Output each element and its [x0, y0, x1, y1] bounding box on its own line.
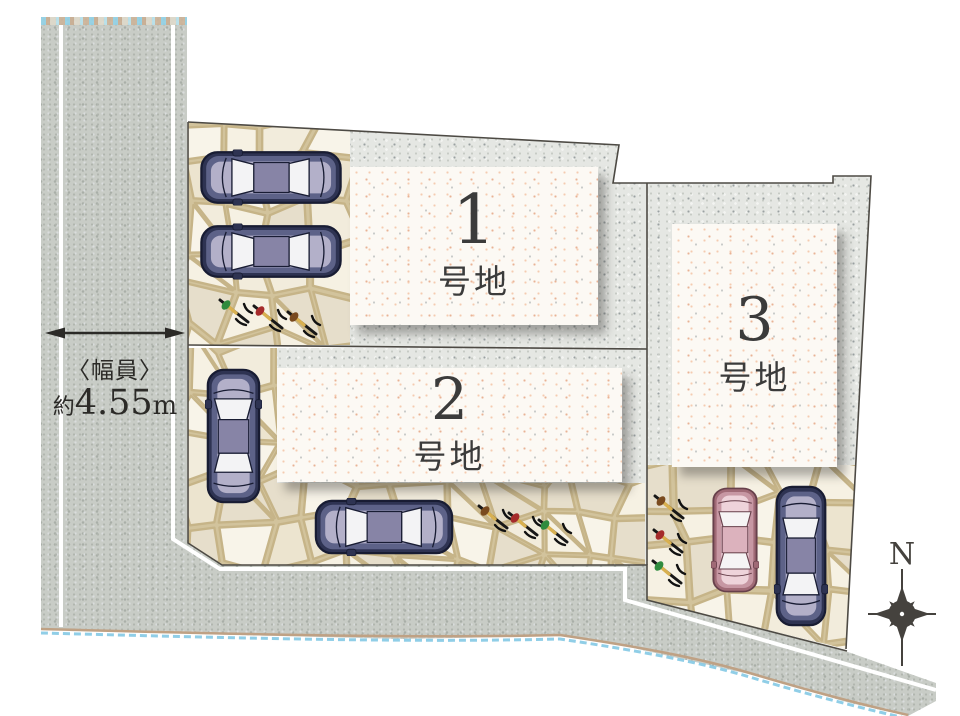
lot-2-number: 2 [431, 372, 468, 427]
car-icon [200, 149, 343, 205]
car-icon [200, 223, 343, 279]
plant-icon [284, 306, 326, 340]
site-plan: 1 号地 2 号地 3 号地 [0, 0, 960, 716]
width-unit: m [153, 391, 178, 421]
plant-icon [535, 514, 577, 548]
width-label: 〈幅員〉 [36, 351, 194, 385]
building-lot-3: 3 号地 [672, 224, 837, 467]
road-width-annotation: 〈幅員〉 約4.55m [36, 325, 194, 423]
width-prefix: 約 [53, 395, 75, 420]
north-label: N [889, 537, 915, 572]
plant-icon [649, 555, 691, 589]
car-icon [205, 368, 262, 504]
lot-3-suffix: 号地 [719, 351, 791, 399]
building-lot-1: 1 号地 [350, 167, 598, 325]
width-number: 4.55 [75, 383, 153, 423]
plant-icon [650, 524, 692, 558]
car-icon [711, 487, 759, 593]
lot-2-suffix: 号地 [414, 430, 486, 478]
lot-1-number: 1 [452, 189, 495, 254]
width-arrow-icon [41, 325, 189, 341]
road-top-edge [41, 17, 187, 25]
compass-rose-icon: N [856, 536, 948, 668]
width-value: 約4.55m [36, 383, 194, 423]
plant-icon [651, 490, 693, 524]
car-icon [314, 498, 454, 556]
lot-3-number: 3 [735, 292, 773, 349]
lot-1-suffix: 号地 [438, 255, 510, 303]
building-lot-2: 2 号地 [277, 368, 622, 482]
car-icon [774, 485, 828, 627]
